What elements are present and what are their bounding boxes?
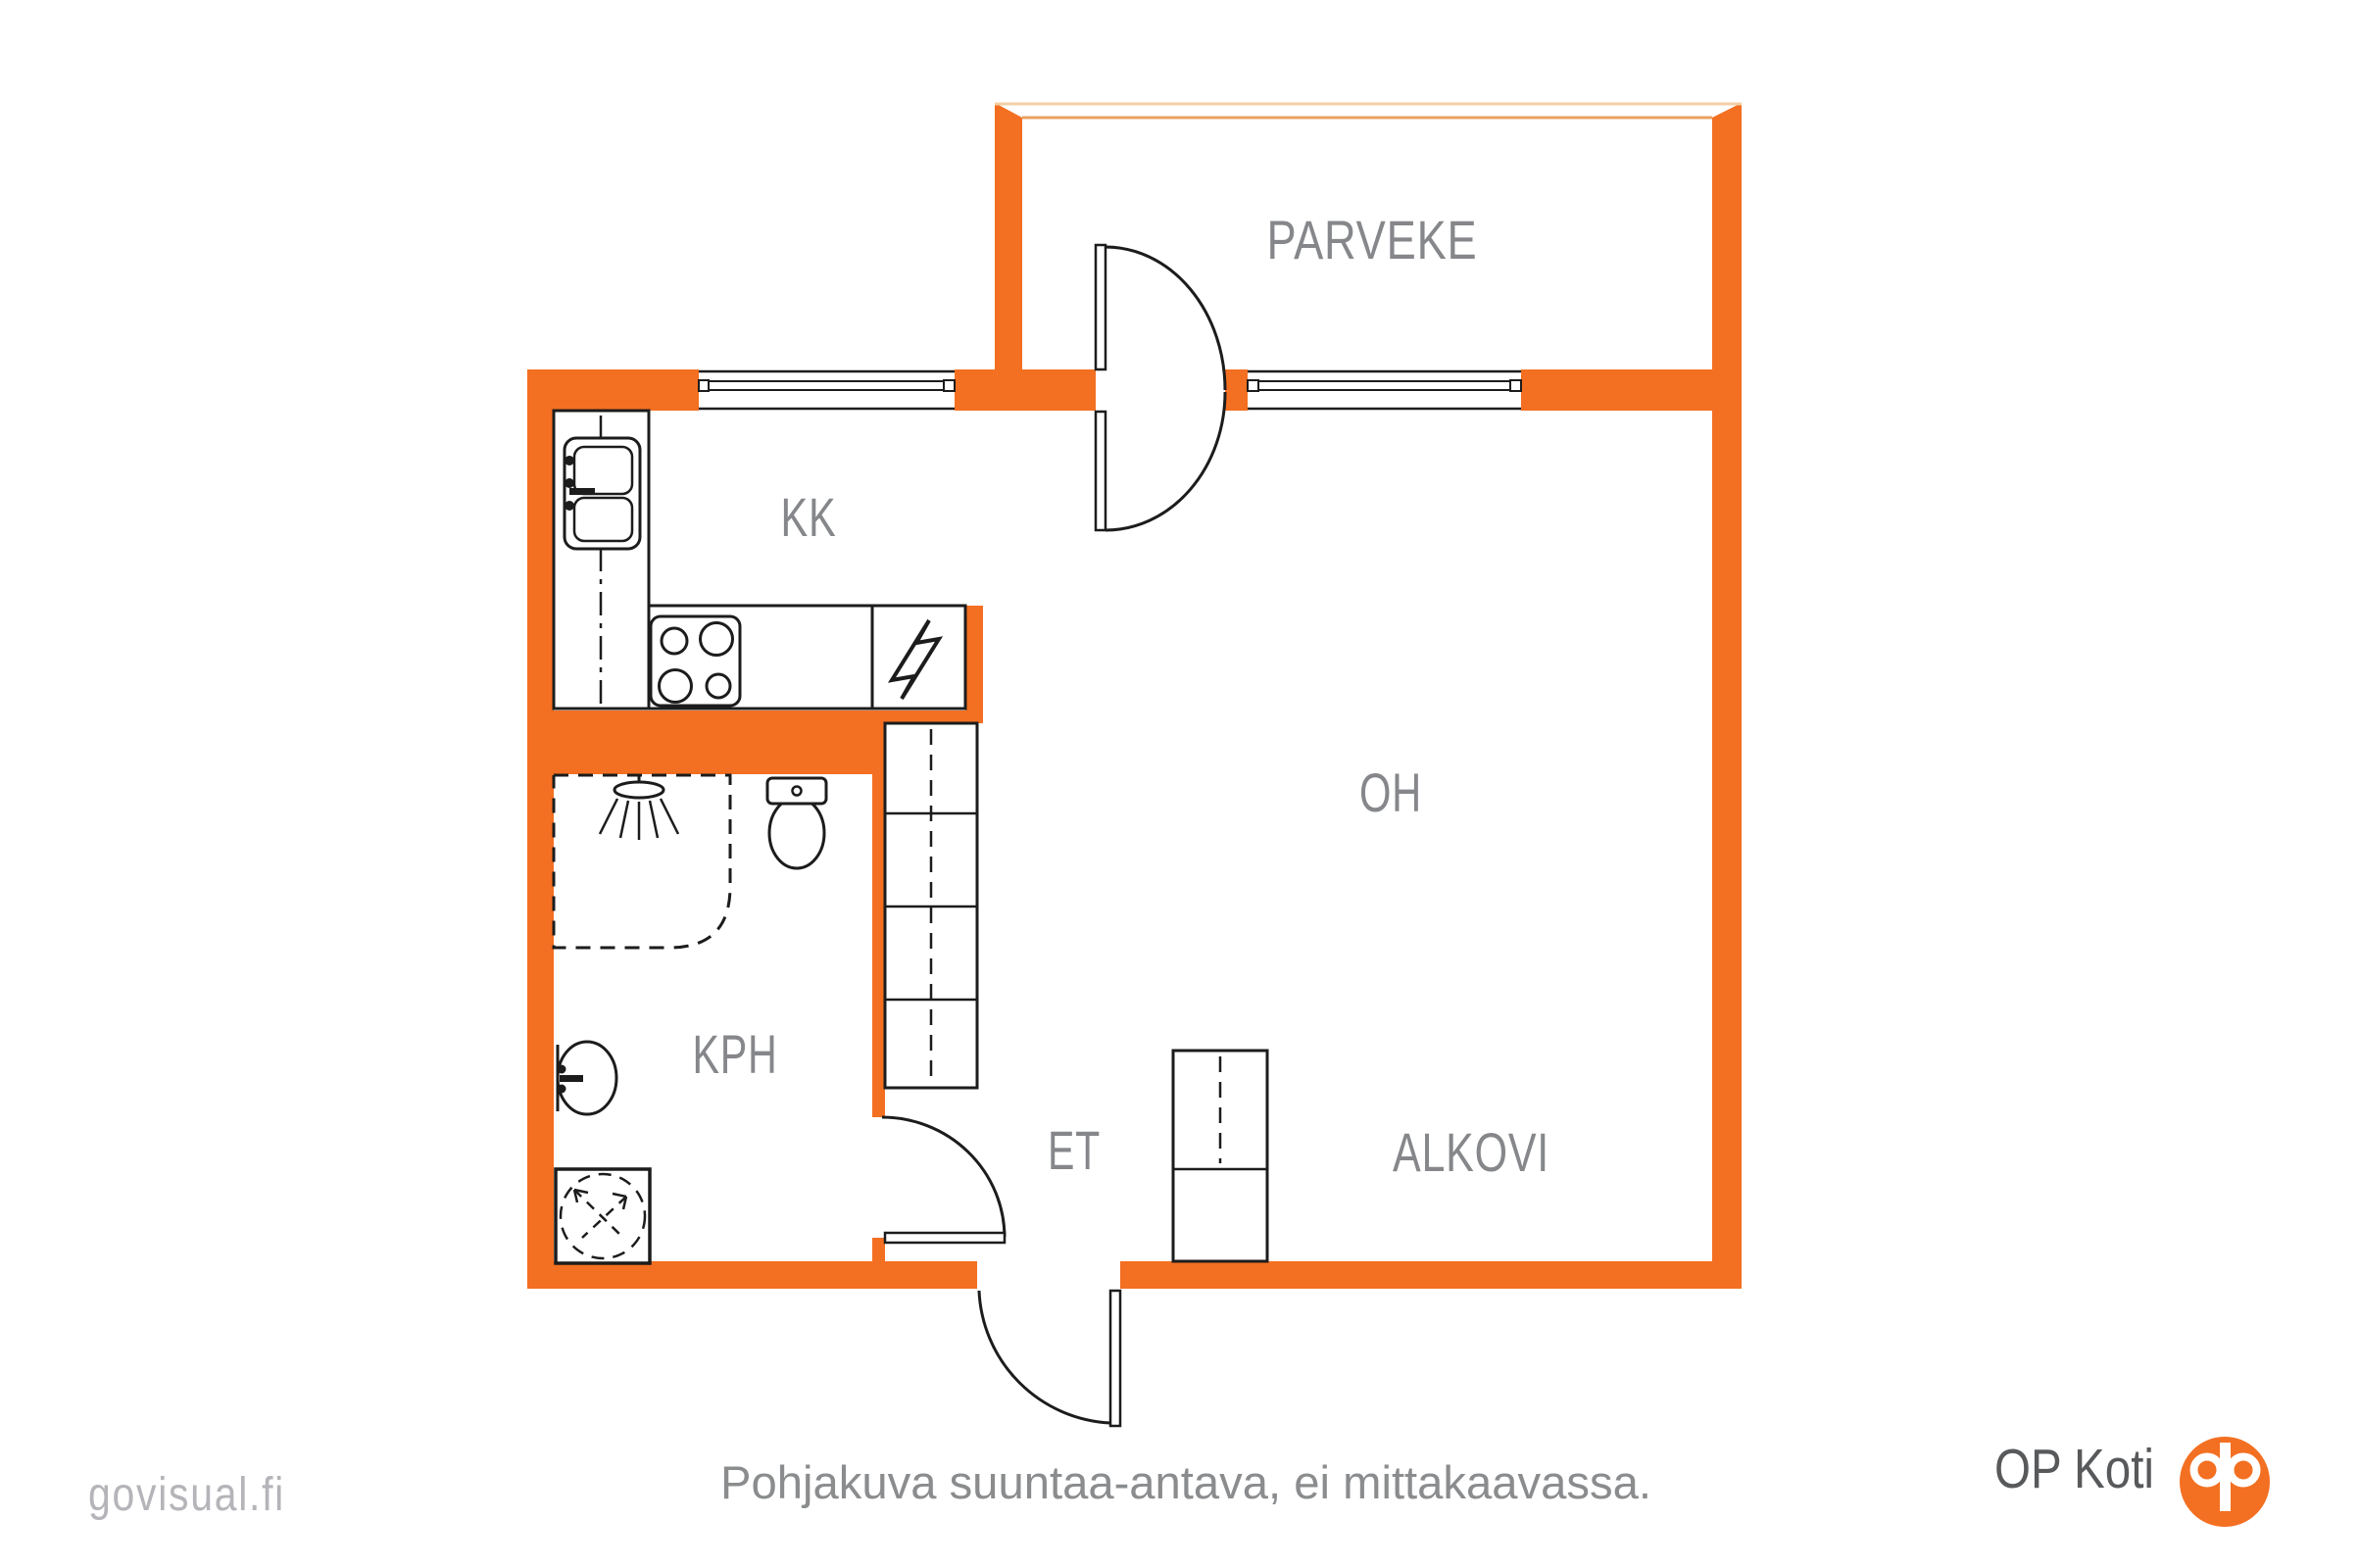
sink-icon (565, 438, 640, 549)
kitchen-fixtures (554, 411, 965, 709)
room-label-alkovi: ALKOVI (1393, 1121, 1549, 1183)
entrance-door-leaf (1110, 1291, 1120, 1426)
wall-top-right (1521, 369, 1742, 411)
balcony-door-leaf-out (1096, 245, 1106, 369)
windows (699, 371, 1521, 409)
wall-bottom-right (1120, 1261, 1742, 1289)
balcony-door-leaf-in (1096, 412, 1106, 530)
wall-pillar (965, 606, 983, 723)
wall-under-panel (885, 710, 965, 723)
floor-plan-drawing: PARVEKE KK OH KPH ET ALKOVI govisual.fi … (0, 0, 2359, 1568)
wall-right (1712, 103, 1742, 1289)
room-label-kk: KK (781, 486, 837, 548)
bathroom-door-leaf (885, 1233, 1005, 1243)
wall-balcony-left (995, 103, 1022, 369)
washbasin-icon (558, 1042, 617, 1114)
op-koti-brand: OP Koti (1994, 1437, 2270, 1527)
wall-top-mid (955, 369, 1096, 411)
shower-head-icon (600, 775, 678, 840)
watermark-govisual: govisual.fi (88, 1469, 285, 1521)
wall-left (527, 369, 554, 1289)
room-label-et: ET (1048, 1119, 1101, 1181)
wall-bathroom-right (872, 774, 885, 1117)
op-logo-icon (2180, 1437, 2270, 1527)
disclaimer-caption: Pohjakuva suuntaa-antava, ei mittakaavas… (720, 1456, 1651, 1508)
living-room-window (1248, 371, 1521, 409)
room-label-kph: KPH (693, 1023, 778, 1085)
toilet-icon (767, 778, 826, 868)
shower-area (554, 775, 730, 948)
kitchen-window (699, 371, 955, 409)
balcony-edge (995, 104, 1742, 118)
wall-bathroom-right-stub (872, 1238, 885, 1261)
wall-kitchen-bathroom (554, 710, 885, 774)
washing-machine-icon (556, 1169, 650, 1263)
electrical-panel (872, 606, 965, 709)
bathroom-fixtures (554, 775, 826, 1263)
footer: govisual.fi Pohjakuva suuntaa-antava, ei… (88, 1437, 2270, 1527)
entrance-door (979, 1291, 1120, 1426)
stove-icon (651, 616, 740, 706)
closet-alkovi (1173, 1051, 1267, 1261)
closet-by-bathroom-wall (885, 723, 977, 1088)
room-label-parveke: PARVEKE (1267, 209, 1478, 270)
room-label-oh: OH (1359, 761, 1422, 823)
brand-text-op-koti: OP Koti (1994, 1438, 2154, 1500)
floor-plan-page: PARVEKE KK OH KPH ET ALKOVI govisual.fi … (0, 0, 2359, 1568)
balcony-double-swing-door (1096, 245, 1225, 530)
wall-top-door-jamb (1225, 369, 1248, 411)
wall-bottom-left (527, 1261, 977, 1289)
bathroom-door (882, 1117, 1005, 1243)
